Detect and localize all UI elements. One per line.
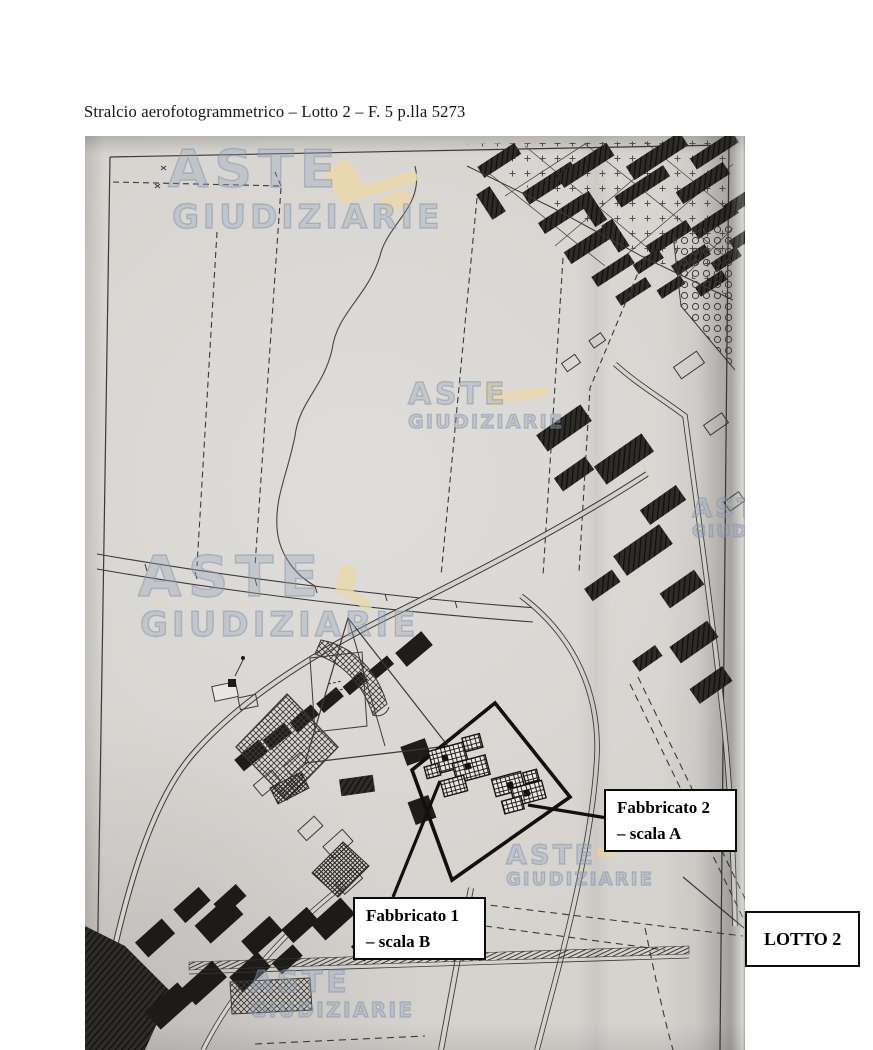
label-lotto-2: LOTTO 2 — [745, 911, 860, 967]
building-cluster-fabbricato-1 — [419, 734, 492, 800]
gavel-icon — [481, 379, 550, 408]
label-fabbricato-2: Fabbricato 2 – scala A — [604, 789, 737, 852]
label-fabbricato-1-line1: Fabbricato 1 — [366, 903, 478, 929]
page-title: Stralcio aerofotogrammetrico – Lotto 2 –… — [84, 102, 466, 122]
parcel-dashed-lines — [113, 172, 645, 576]
label-fabbricato-1-line2: – scala B — [366, 929, 478, 955]
label-fabbricato-1: Fabbricato 1 – scala B — [353, 897, 486, 960]
document-page: { "page": { "title": "Stralcio aerofotog… — [0, 0, 873, 1050]
leader-fabbricato-1 — [393, 781, 440, 897]
gavel-icon — [323, 158, 419, 214]
label-fabbricato-2-line1: Fabbricato 2 — [617, 795, 729, 821]
stream-line — [277, 166, 417, 586]
label-lotto-2-text: LOTTO 2 — [764, 929, 841, 950]
urban-blocks — [155, 136, 745, 370]
label-fabbricato-2-line2: – scala A — [617, 821, 729, 847]
